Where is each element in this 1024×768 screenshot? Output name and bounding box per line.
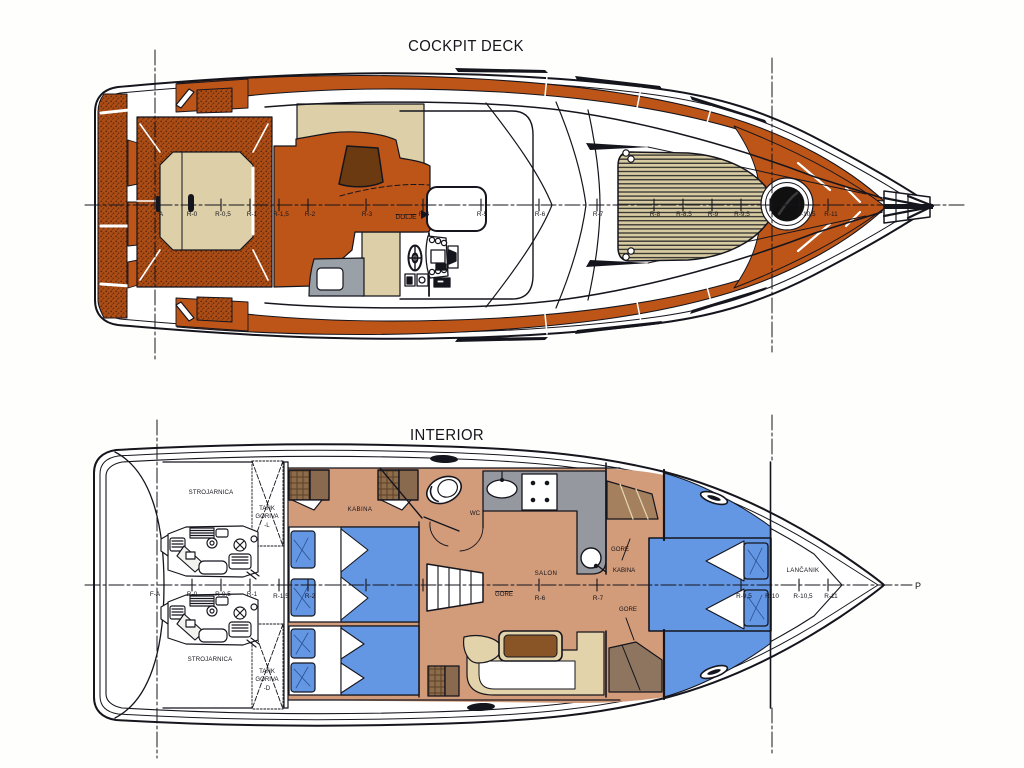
svg-text:-L: -L — [264, 522, 270, 529]
svg-text:GORIVA: GORIVA — [255, 676, 279, 683]
svg-text:R-1: R-1 — [247, 211, 258, 218]
svg-text:P: P — [915, 581, 921, 591]
svg-text:R-5: R-5 — [477, 211, 488, 218]
svg-text:R-10,5: R-10,5 — [796, 211, 816, 218]
svg-text:R-0,5: R-0,5 — [215, 591, 231, 598]
svg-text:R-9,5: R-9,5 — [734, 211, 750, 218]
svg-text:WC: WC — [470, 510, 481, 517]
svg-text:R-8,5: R-8,5 — [676, 211, 692, 218]
svg-text:TANK: TANK — [259, 668, 275, 675]
svg-text:LANČANIK: LANČANIK — [787, 567, 820, 574]
svg-text:R-7: R-7 — [593, 211, 604, 218]
svg-text:GORE: GORE — [495, 591, 513, 598]
svg-text:R-1,5: R-1,5 — [273, 211, 289, 218]
svg-text:R-9: R-9 — [708, 211, 719, 218]
svg-text:KABINA: KABINA — [348, 506, 373, 513]
svg-text:R-6: R-6 — [535, 211, 546, 218]
svg-text:R-3: R-3 — [362, 211, 373, 218]
svg-text:R-0,5: R-0,5 — [215, 211, 231, 218]
svg-text:R-10,5: R-10,5 — [793, 593, 813, 600]
svg-text:R-11: R-11 — [824, 211, 838, 218]
svg-text:A: A — [159, 211, 164, 218]
svg-text:R-4: R-4 — [419, 211, 430, 218]
svg-text:R-1,5: R-1,5 — [273, 593, 289, 600]
svg-text:KABINA: KABINA — [613, 567, 636, 574]
svg-text:R-1: R-1 — [247, 591, 258, 598]
svg-text:GORE: GORE — [619, 606, 637, 613]
svg-text:R-7: R-7 — [593, 595, 604, 602]
svg-text:R-2: R-2 — [305, 593, 316, 600]
svg-text:STROJARNICA: STROJARNICA — [188, 656, 233, 663]
svg-text:INTERIOR: INTERIOR — [410, 427, 484, 445]
svg-text:R-10: R-10 — [765, 593, 779, 600]
svg-text:GORIVA: GORIVA — [255, 513, 279, 520]
svg-text:R-0: R-0 — [187, 211, 198, 218]
svg-text:R-6: R-6 — [535, 595, 546, 602]
svg-text:R-11: R-11 — [824, 593, 838, 600]
svg-text:STROJARNICA: STROJARNICA — [189, 489, 234, 496]
svg-text:R-9,5: R-9,5 — [736, 593, 752, 600]
svg-text:F-A: F-A — [150, 591, 161, 598]
svg-text:-D: -D — [264, 685, 271, 692]
svg-text:R-0: R-0 — [187, 591, 198, 598]
svg-text:R-2: R-2 — [305, 211, 316, 218]
svg-text:R-8: R-8 — [650, 211, 661, 218]
svg-text:TANK: TANK — [259, 505, 275, 512]
svg-text:COCKPIT DECK: COCKPIT DECK — [408, 38, 524, 56]
svg-text:DOLJE: DOLJE — [396, 214, 418, 221]
svg-text:SALON: SALON — [535, 570, 558, 577]
